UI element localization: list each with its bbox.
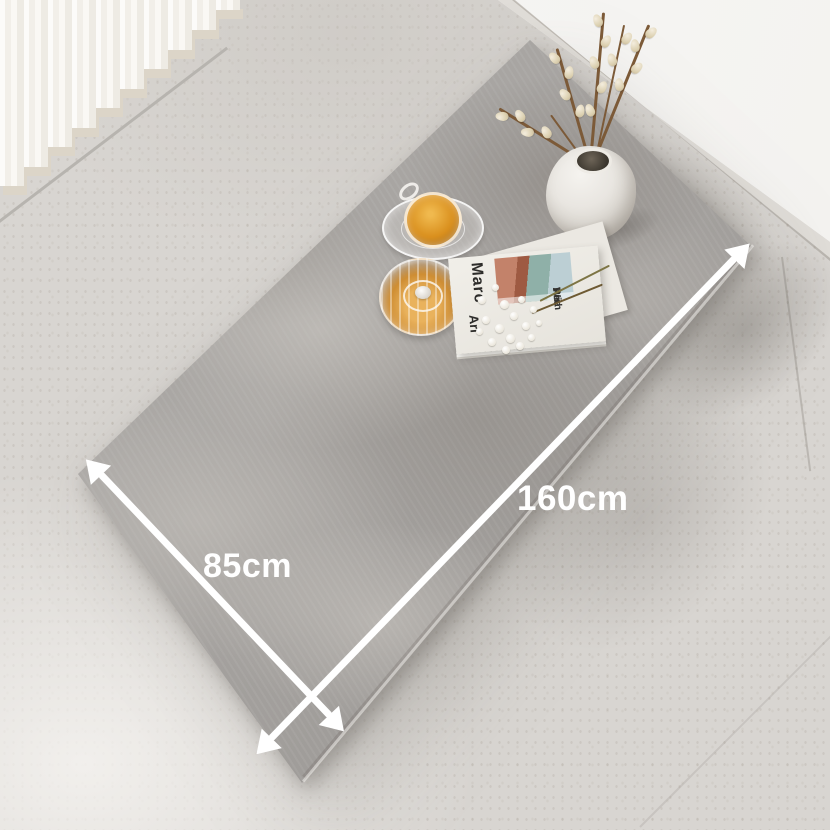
teapot-lid-knob: [415, 286, 431, 299]
length-dimension-label: 160cm: [517, 479, 628, 519]
width-dimension-label: 85cm: [203, 547, 292, 586]
gypsophila-flowers: [468, 278, 564, 358]
table-top-surface: [0, 0, 830, 830]
tea-cup: [404, 192, 462, 248]
dining-table: [0, 0, 830, 830]
product-photo-scene: Marc Ari Rea Ari With 160cm 85cm: [0, 0, 830, 830]
vase-opening: [574, 148, 612, 174]
